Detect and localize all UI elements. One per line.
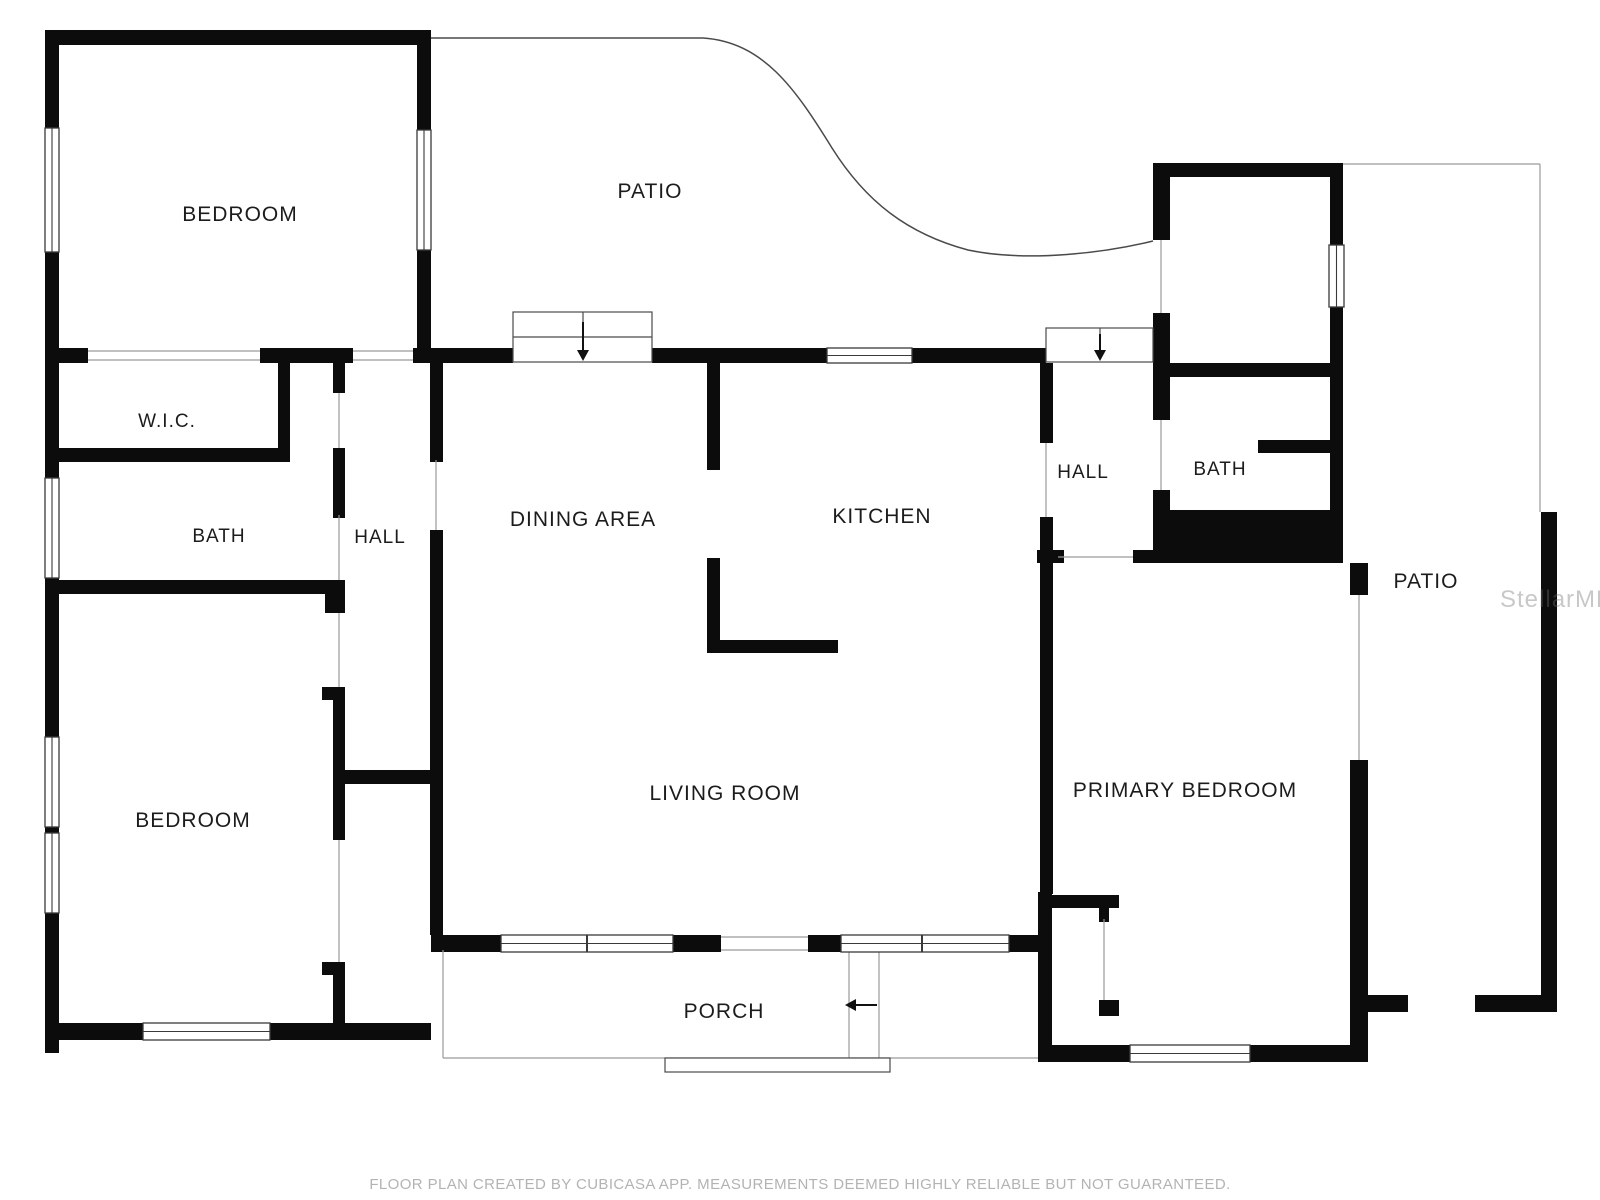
wall [1153, 313, 1170, 377]
room-label-porch: PORCH [684, 1000, 765, 1023]
wall [260, 348, 353, 363]
wall [707, 363, 720, 470]
wall [707, 640, 838, 653]
entry-arrow-head [845, 999, 856, 1011]
room-label-living-room: LIVING ROOM [649, 782, 800, 805]
room-label-bath-left: BATH [192, 526, 245, 547]
wall [1330, 307, 1343, 440]
footer-disclaimer: FLOOR PLAN CREATED BY CUBICASA APP. MEAS… [0, 1176, 1600, 1193]
stellar-mls-watermark: StellarMLS [1500, 586, 1600, 614]
wall [1052, 895, 1119, 908]
wall [1153, 490, 1170, 512]
wall [1153, 163, 1170, 240]
room-label-primary-bedroom: PRIMARY BEDROOM [1073, 779, 1297, 802]
wall [270, 1023, 431, 1040]
room-label-hall-left: HALL [354, 527, 406, 548]
wall [1040, 517, 1053, 894]
wall [45, 363, 59, 450]
wall [430, 363, 443, 462]
wall [333, 700, 345, 840]
wall [45, 30, 431, 45]
room-label-wic: W.I.C. [138, 411, 196, 432]
wall [430, 530, 443, 935]
room-label-bedroom-bottom-left: BEDROOM [135, 809, 251, 832]
room-label-kitchen: KITCHEN [832, 505, 931, 528]
patio-boundary-curve [431, 38, 1153, 256]
floor-plan-page: BEDROOMPATIOW.I.C.BATHHALLDINING AREAKIT… [0, 0, 1600, 1200]
wall [1330, 163, 1343, 245]
wall [413, 348, 431, 363]
wall [1040, 363, 1053, 443]
wall [1009, 935, 1040, 952]
wall [417, 30, 431, 130]
wall [1330, 440, 1343, 512]
room-label-patio-top: PATIO [618, 180, 683, 203]
wall [325, 588, 345, 613]
wall [1153, 163, 1343, 177]
room-label-bedroom-top-left: BEDROOM [182, 203, 298, 226]
wall [1038, 892, 1052, 1062]
floor-plan-drawing: BEDROOMPATIOW.I.C.BATHHALLDINING AREAKIT… [0, 0, 1600, 1200]
wall [808, 935, 841, 952]
wall [1350, 563, 1368, 595]
wall [45, 1023, 143, 1040]
wall [1170, 363, 1330, 377]
wall [45, 30, 59, 130]
wall [278, 363, 290, 450]
wall [1099, 1000, 1119, 1016]
wall [333, 363, 345, 393]
wall [1153, 377, 1170, 420]
wall [45, 250, 59, 362]
porch-step [665, 1058, 890, 1072]
wall [652, 348, 827, 363]
wall [1368, 995, 1408, 1012]
room-label-patio-right: PATIO [1394, 570, 1459, 593]
room-label-hall-right: HALL [1057, 462, 1109, 483]
room-label-bath-right: BATH [1193, 459, 1246, 480]
wall [707, 558, 720, 653]
wall [1153, 510, 1343, 563]
room-label-dining-area: DINING AREA [510, 508, 656, 531]
wall [417, 248, 431, 363]
wall [673, 935, 721, 952]
wall [45, 448, 290, 462]
wall [1258, 440, 1330, 453]
wall [431, 935, 501, 952]
wall [1038, 1045, 1130, 1062]
wall [45, 448, 59, 480]
wall [45, 348, 88, 363]
wall [1250, 1045, 1368, 1062]
wall [1350, 760, 1368, 1062]
wall [912, 348, 1046, 363]
wall [322, 687, 345, 700]
wall [333, 448, 345, 518]
wall [45, 580, 345, 594]
wall [45, 594, 59, 739]
wall [431, 348, 513, 363]
wall [345, 770, 443, 784]
